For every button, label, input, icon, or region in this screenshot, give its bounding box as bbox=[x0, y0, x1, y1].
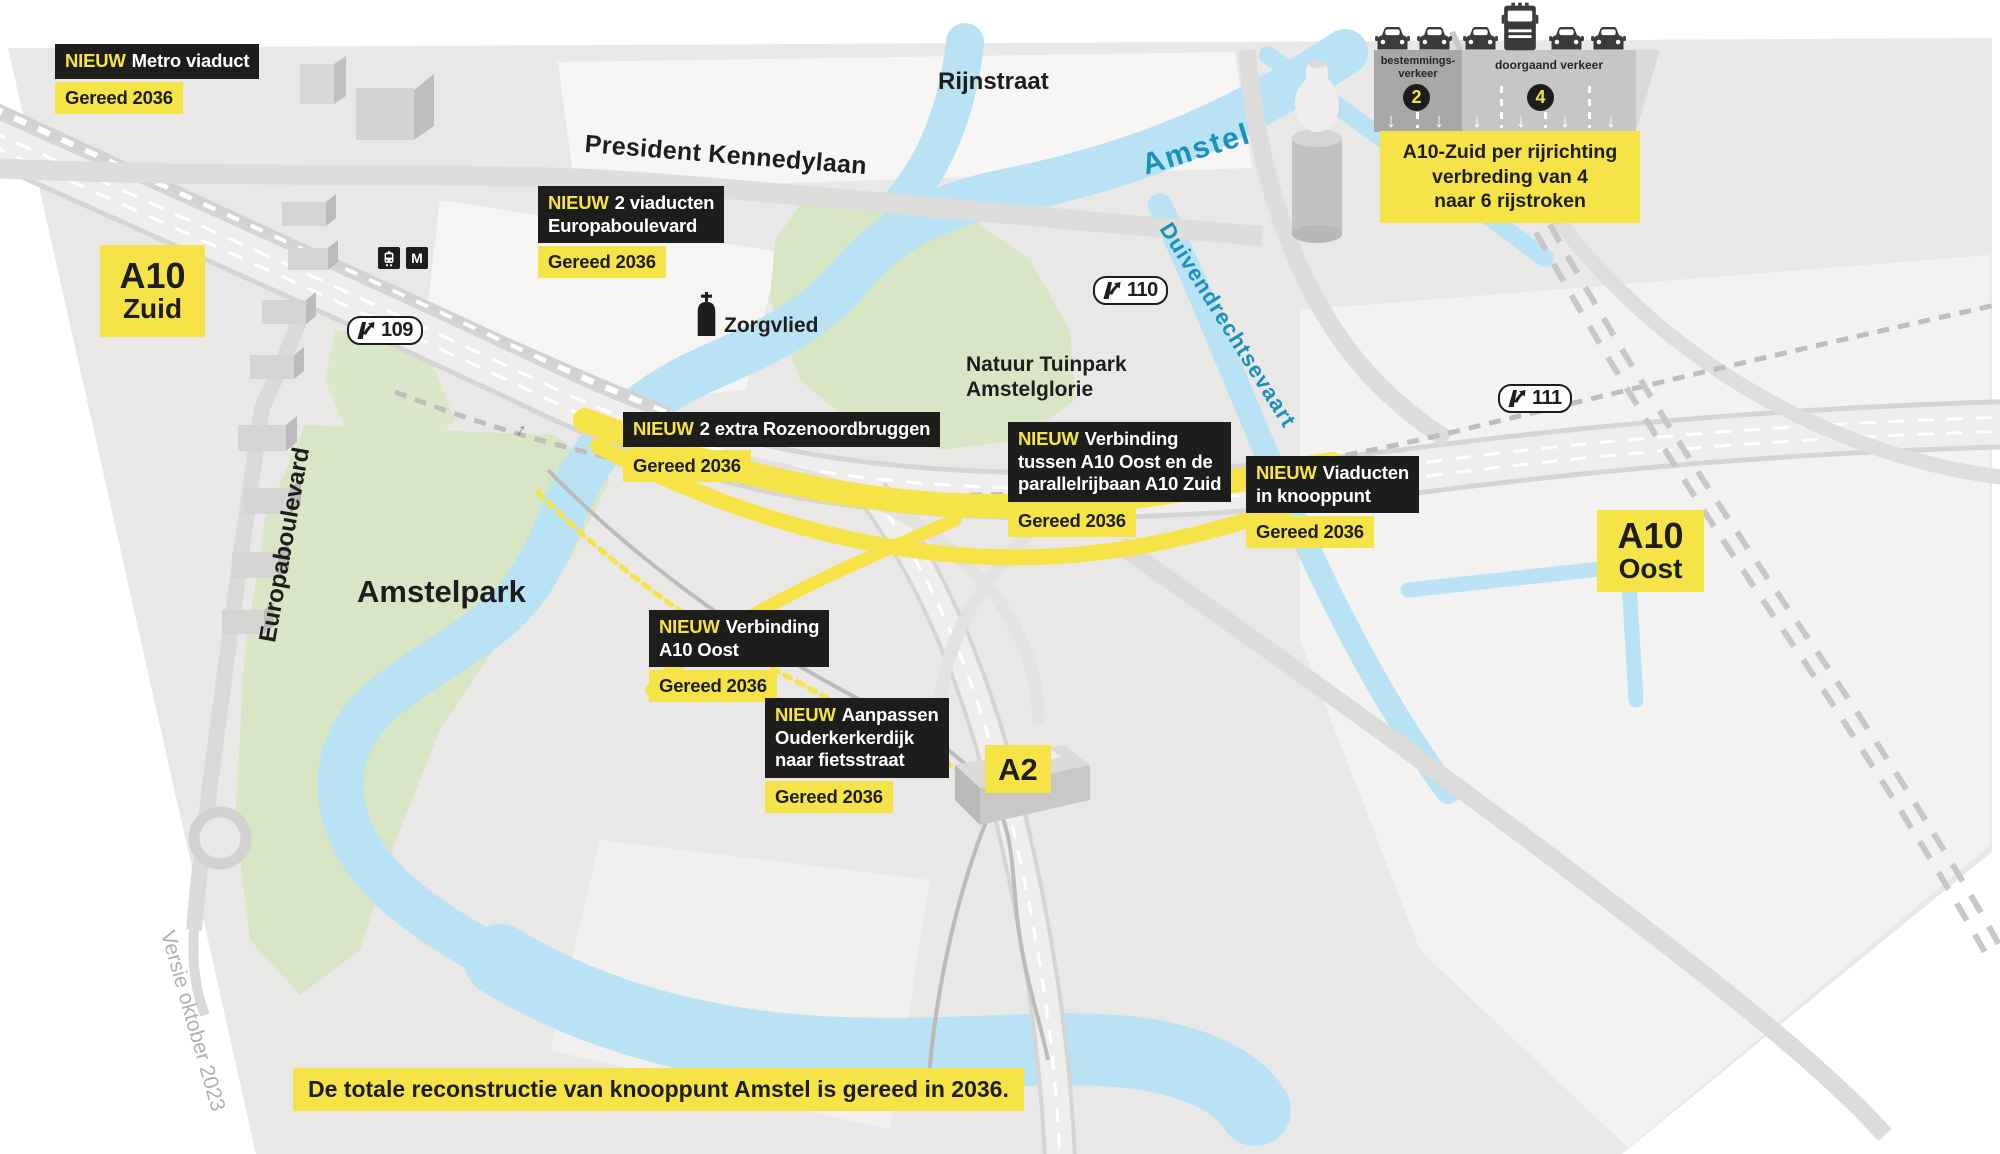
conclusion-banner: De totale reconstructie van knooppunt Am… bbox=[293, 1068, 1024, 1111]
nieuw-tag: NIEUW bbox=[1018, 428, 1079, 449]
status-badge: Gereed 2036 bbox=[1246, 516, 1374, 548]
badge-a2: A2 bbox=[985, 745, 1051, 793]
water-tower bbox=[1292, 60, 1342, 243]
lane-divider bbox=[1500, 86, 1503, 128]
badge-line2: Zuid bbox=[100, 294, 205, 325]
nieuw-tag: NIEUW bbox=[548, 192, 609, 213]
status-badge: Gereed 2036 bbox=[649, 670, 777, 702]
lane-diagram-caption: A10-Zuid per rijrichting verbreding van … bbox=[1380, 131, 1640, 223]
nieuw-tag: NIEUW bbox=[1256, 462, 1317, 483]
lane-arrow-icon: ↓ bbox=[1606, 111, 1616, 131]
area-label-tuinpark-amstelglorie: Natuur Tuinpark Amstelglorie bbox=[966, 352, 1127, 402]
project-label-viaducten-europaboulevard: NIEUW2 viaducten Europaboulevard Gereed … bbox=[538, 186, 724, 278]
badge-line1: A2 bbox=[985, 754, 1051, 785]
lane-divider bbox=[1588, 86, 1591, 128]
metro-station-icon: M bbox=[406, 247, 428, 269]
project-label-metro-viaduct: NIEUWMetro viaduct Gereed 2036 bbox=[55, 44, 259, 114]
exit-number: 111 bbox=[1532, 387, 1562, 410]
car-icon bbox=[1416, 24, 1453, 56]
status-badge: Gereed 2036 bbox=[1008, 505, 1136, 537]
lane-count-left: 2 bbox=[1403, 84, 1430, 111]
car-icon bbox=[1548, 24, 1585, 56]
roundabout bbox=[194, 812, 246, 864]
lane-arrow-icon: ↓ bbox=[1386, 111, 1396, 131]
car-icon bbox=[1462, 24, 1499, 56]
lane-count-right: 4 bbox=[1527, 84, 1554, 111]
area-label-amstelpark: Amstelpark bbox=[357, 574, 526, 610]
project-text: Metro viaduct bbox=[132, 50, 250, 71]
lane-label-bestemmingsverkeer: bestemmings- verkeer bbox=[1374, 55, 1462, 81]
exit-109: 109 bbox=[347, 316, 423, 345]
project-text: 2 extra Rozenoordbruggen bbox=[700, 418, 931, 439]
badge-line1: A10 bbox=[1597, 518, 1704, 554]
status-badge: Gereed 2036 bbox=[623, 450, 751, 482]
status-badge: Gereed 2036 bbox=[55, 82, 183, 114]
project-label-ouderkerkerdijk: NIEUWAanpassen Ouderkerkerdijk naar fiet… bbox=[765, 698, 949, 813]
lane-arrow-icon: ↓ bbox=[1560, 111, 1570, 131]
area-label-zorgvlied: Zorgvlied bbox=[724, 314, 819, 338]
exit-110: 110 bbox=[1093, 276, 1168, 305]
train-icon bbox=[378, 247, 400, 269]
exit-number: 110 bbox=[1127, 279, 1158, 302]
nieuw-tag: NIEUW bbox=[659, 616, 720, 637]
badge-line1: A10 bbox=[100, 258, 205, 294]
project-label-verbinding-parallelrijbaan: NIEUWVerbinding tussen A10 Oost en de pa… bbox=[1008, 422, 1231, 537]
project-label-verbinding-a10-oost: NIEUWVerbinding A10 Oost Gereed 2036 bbox=[649, 610, 829, 702]
tombstone-icon bbox=[693, 292, 720, 336]
badge-a10-oost: A10 Oost bbox=[1597, 510, 1704, 592]
building-rai bbox=[356, 72, 434, 140]
motorway-exit-icon bbox=[354, 321, 378, 340]
motorway-exit-icon bbox=[1505, 389, 1529, 408]
nieuw-tag: NIEUW bbox=[65, 50, 126, 71]
badge-a10-zuid: A10 Zuid bbox=[100, 245, 205, 337]
infographic-map-knooppunt-amstel: NIEUWMetro viaduct Gereed 2036 NIEUW2 vi… bbox=[0, 0, 2000, 1154]
nieuw-tag: NIEUW bbox=[775, 704, 836, 725]
exit-number: 109 bbox=[381, 319, 413, 342]
lane-arrow-icon: ↓ bbox=[1472, 111, 1482, 131]
exit-111: 111 bbox=[1498, 384, 1572, 413]
lane-arrow-icon: ↓ bbox=[1516, 111, 1526, 131]
motorway-exit-icon bbox=[1100, 281, 1124, 300]
project-label-viaducten-knooppunt: NIEUWViaducten in knooppunt Gereed 2036 bbox=[1246, 456, 1419, 548]
car-icon bbox=[1590, 24, 1627, 56]
street-label-rijnstraat: Rijnstraat bbox=[938, 68, 1049, 96]
project-label-rozenoordbruggen: NIEUW2 extra Rozenoordbruggen Gereed 203… bbox=[623, 412, 940, 482]
car-icon bbox=[1374, 24, 1411, 56]
truck-icon bbox=[1497, 2, 1543, 56]
zorgvlied-group bbox=[693, 292, 720, 341]
status-badge: Gereed 2036 bbox=[538, 246, 666, 278]
nieuw-tag: NIEUW bbox=[633, 418, 694, 439]
status-badge: Gereed 2036 bbox=[765, 781, 893, 813]
lane-label-doorgaand-verkeer: doorgaand verkeer bbox=[1462, 58, 1636, 72]
badge-line2: Oost bbox=[1597, 554, 1704, 585]
metro-m-label: M bbox=[411, 250, 423, 266]
lane-arrow-icon: ↓ bbox=[1434, 111, 1444, 131]
